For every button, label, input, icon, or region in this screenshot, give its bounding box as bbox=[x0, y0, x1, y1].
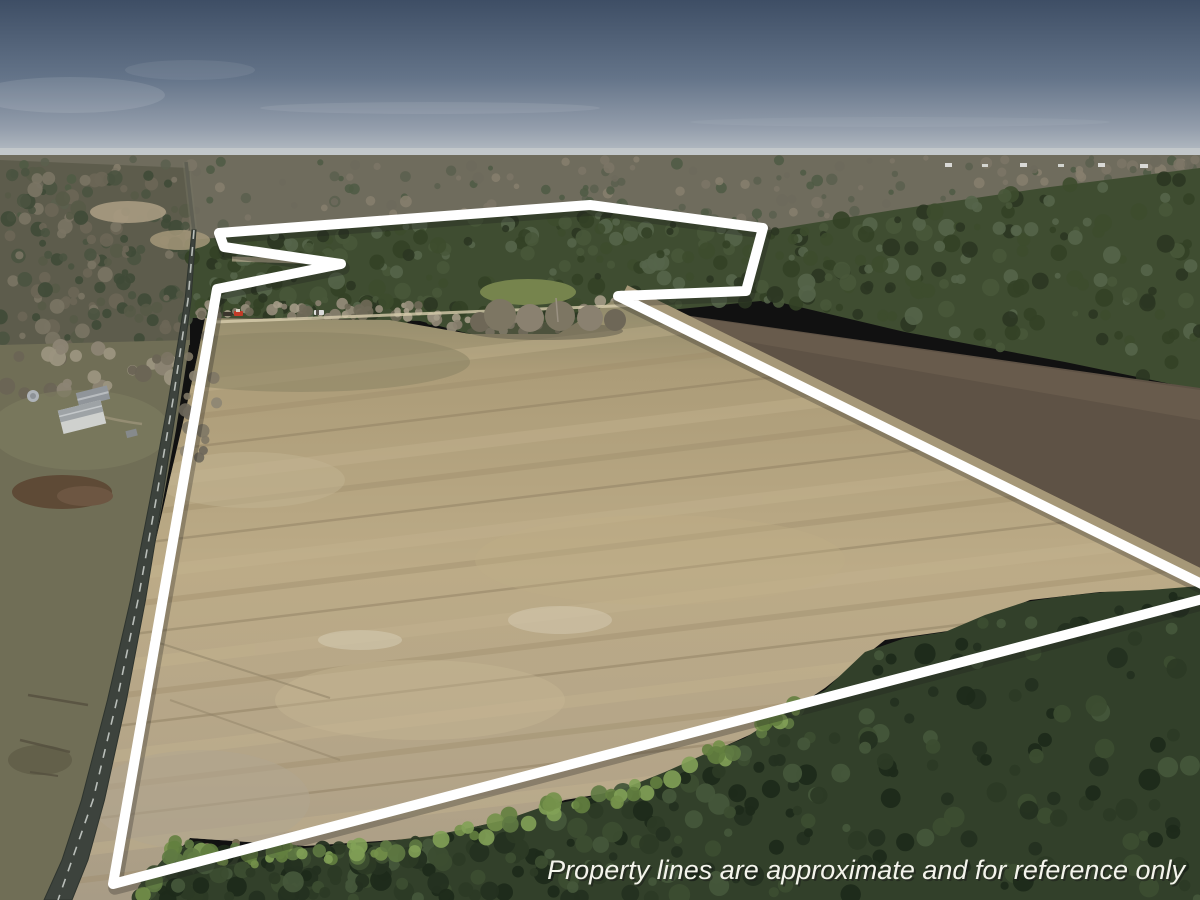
aerial-photo: Property lines are approximate and for r… bbox=[0, 0, 1200, 900]
pickup-truck bbox=[314, 310, 324, 315]
aerial-photo-canvas: Property lines are approximate and for r… bbox=[0, 0, 1200, 900]
disclaimer-caption: Property lines are approximate and for r… bbox=[547, 855, 1186, 885]
